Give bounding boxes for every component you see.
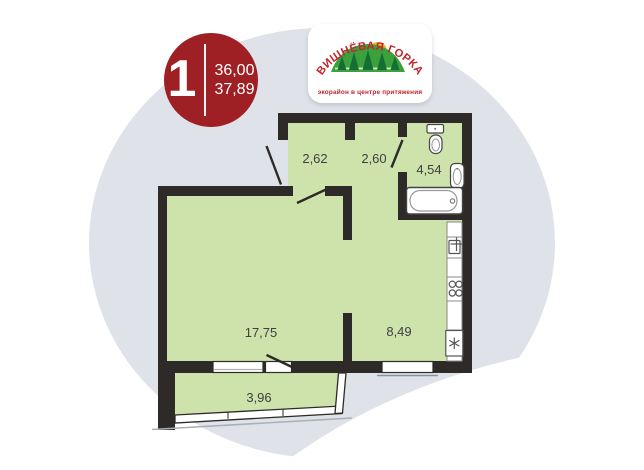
kitchen-fixtures xyxy=(446,222,463,361)
balcony-door-threshold xyxy=(266,362,292,373)
living-window xyxy=(213,362,263,373)
wall-left xyxy=(158,186,167,373)
floorplan-card: 2,62 2,60 4,54 17,75 8,49 3,96 1 36,00 3… xyxy=(0,0,644,470)
wall-divider-lower xyxy=(343,313,352,361)
wall-living-top xyxy=(158,186,293,196)
wall-entry-stub xyxy=(278,113,288,140)
rooms-count: 1 xyxy=(168,53,197,105)
room-label-living: 17,75 xyxy=(245,325,278,340)
brand-subtitle: экорайон в центре притяжения xyxy=(318,88,423,96)
wall-hall-stub xyxy=(345,123,355,140)
living-area-value: 36,00 xyxy=(214,61,254,80)
fridge-icon xyxy=(446,331,463,357)
wall-top xyxy=(278,113,472,123)
room-label-hallway: 2,62 xyxy=(302,151,327,166)
wall-bath-left-upper xyxy=(398,123,407,137)
brand-logo-art: ВИШНЁВАЯ ГОРКА экорайон в центре притяже… xyxy=(308,24,432,103)
room-label-balcony: 3,96 xyxy=(246,390,271,405)
wall-balcony-left xyxy=(158,373,175,430)
toilet-icon xyxy=(427,125,444,154)
room-label-kitchen: 8,49 xyxy=(386,324,411,339)
room-label-bathroom: 4,54 xyxy=(416,162,441,177)
badge-divider xyxy=(204,44,206,116)
brand-logo: ВИШНЁВАЯ ГОРКА экорайон в центре притяже… xyxy=(308,24,432,103)
wall-divider-upper xyxy=(343,186,352,240)
total-area-value: 37,89 xyxy=(214,80,254,99)
rooms-area-badge: 1 36,00 37,89 xyxy=(164,33,258,127)
room-label-corridor: 2,60 xyxy=(361,151,386,166)
bathtub-icon xyxy=(407,188,463,215)
basin-icon xyxy=(451,164,465,189)
kitchen-window xyxy=(382,362,433,373)
wall-right xyxy=(462,113,472,373)
